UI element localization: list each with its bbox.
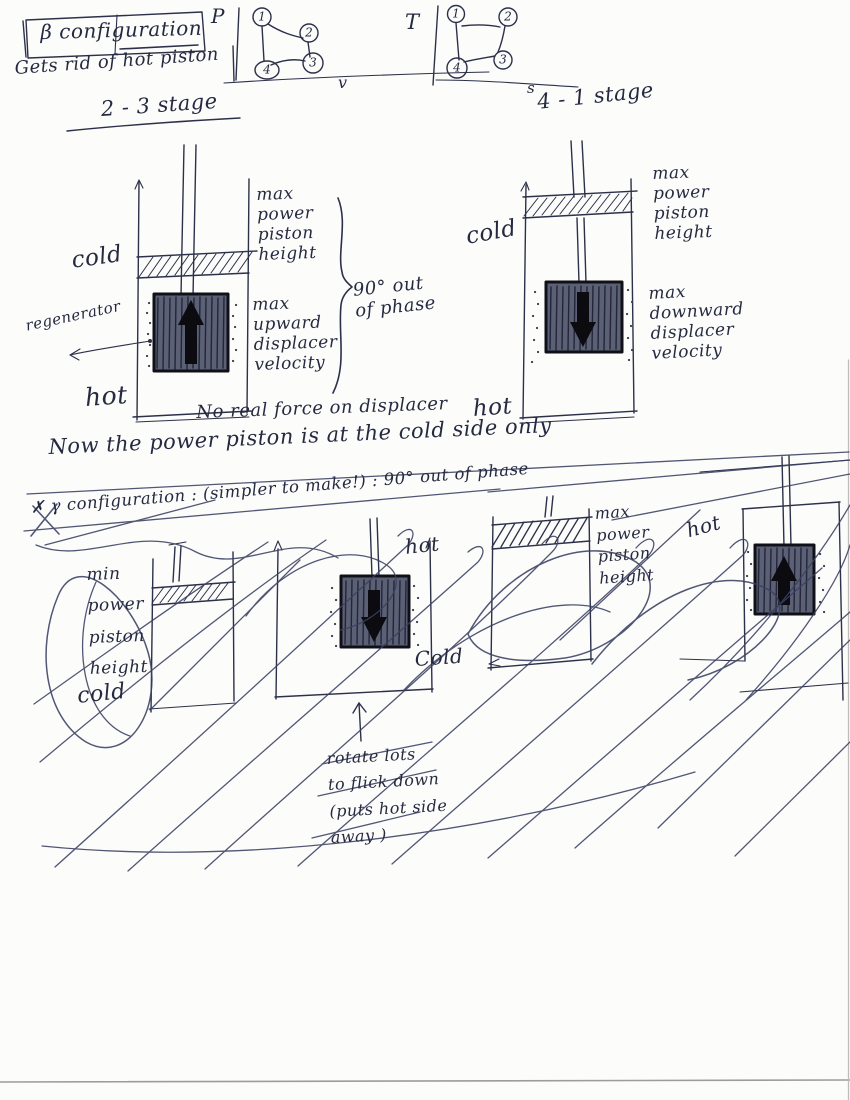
ts-point-3: 3 — [494, 52, 512, 66]
stage-23-hot-label: hot — [84, 380, 129, 412]
pv-x-axis-label: v — [338, 74, 348, 93]
pv-point-4: 4 — [258, 62, 276, 76]
ts-x-axis-label: s — [527, 80, 535, 98]
config-box-label: β configuration — [40, 17, 202, 45]
notebook-page: β configuration Gets rid of hot piston P… — [0, 0, 850, 1100]
gamma-max-piston-note: max power piston height — [594, 499, 655, 589]
stage-23-displacer-note: max upward displacer velocity — [252, 292, 338, 375]
ts-y-axis-label: T — [405, 10, 420, 35]
cylinder-4-1-stage — [520, 141, 637, 423]
gamma-hot-mid-label: hot — [404, 532, 441, 559]
gamma-rotate-note: rotate lots to flick down (puts hot side… — [326, 740, 449, 852]
regenerator-pointer-arrow — [70, 339, 152, 360]
gamma-right-cylinder — [680, 456, 850, 700]
gamma-min-piston-note: min power piston height — [86, 558, 148, 686]
pv-point-1: 1 — [253, 9, 271, 23]
stage-23-piston-note: max power piston height — [256, 183, 317, 265]
ts-point-4: 4 — [448, 60, 466, 74]
pv-point-2: 2 — [300, 25, 318, 39]
stage-23-underline — [67, 118, 240, 131]
pv-y-axis-label: P — [211, 5, 225, 29]
gamma-cold-mid-label: Cold — [414, 645, 464, 672]
stage-41-displacer-note: max downward displacer velocity — [648, 279, 746, 364]
pv-point-3: 3 — [304, 55, 322, 69]
stage-41-piston-note: max power piston height — [652, 162, 713, 244]
phase-note: 90° out of phase — [352, 272, 437, 323]
gamma-cold-left-label: cold — [76, 679, 127, 710]
gamma-third-cylinder — [488, 496, 593, 670]
gamma-bottom-left-cylinder — [149, 542, 236, 712]
ts-point-1: 1 — [447, 6, 465, 20]
ts-point-2: 2 — [499, 9, 517, 23]
